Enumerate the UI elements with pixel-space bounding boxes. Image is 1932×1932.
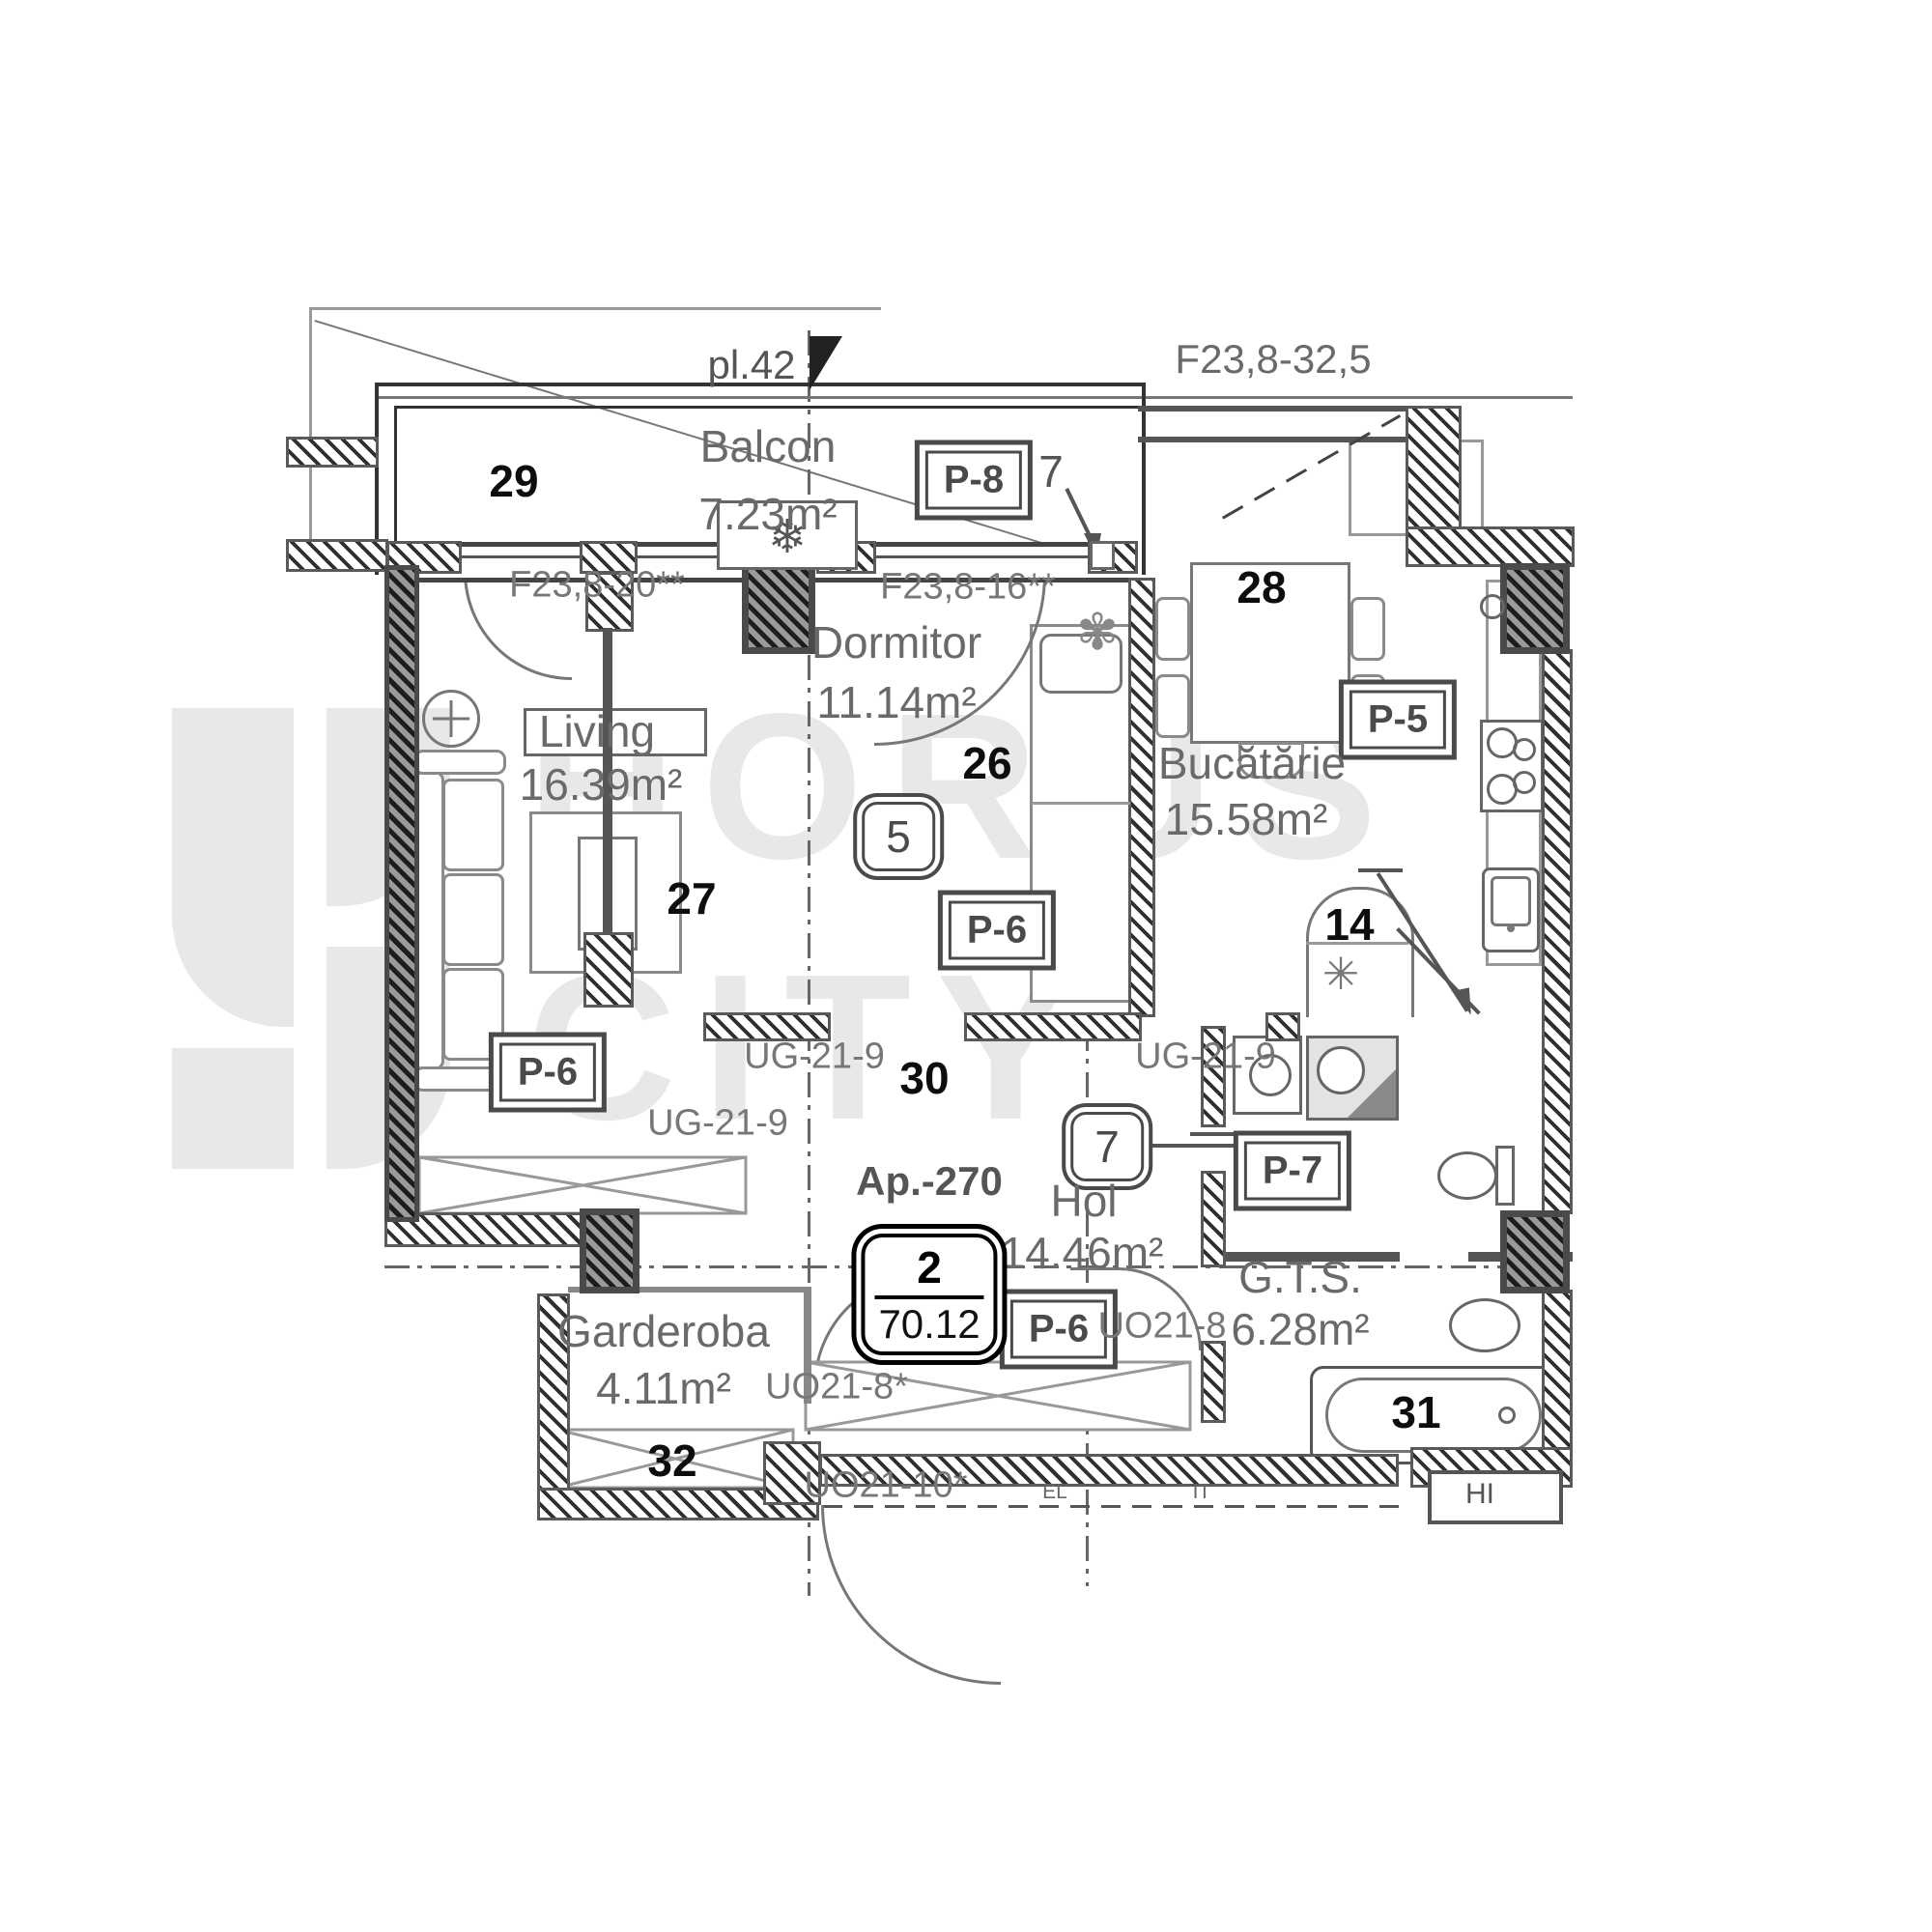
wall-stub-left xyxy=(286,437,379,468)
plan-ref-marker xyxy=(810,336,842,390)
panel-tag-p6-living: P-6 xyxy=(499,1043,596,1102)
boiler-arrowhead-1 xyxy=(1452,987,1474,1017)
room-number-living: 27 xyxy=(667,872,716,924)
apartment-number: 2 xyxy=(874,1241,983,1299)
boundary-line-top xyxy=(309,307,881,310)
toilet-tank xyxy=(1495,1146,1515,1206)
panel-label-hi: HI xyxy=(1465,1478,1494,1511)
room-area-dormitor: 11.14m² xyxy=(816,676,976,728)
opening-tag-uo-bottom: UO21-10* xyxy=(805,1465,968,1507)
cooktop xyxy=(1480,720,1544,812)
bathtub-drain xyxy=(1498,1406,1516,1424)
sofa-seat-3 xyxy=(442,968,504,1061)
hol-bottom-door-arc xyxy=(821,1505,1001,1685)
wall-bath-left-3 xyxy=(1201,1341,1226,1423)
bed-blanket-line xyxy=(1032,802,1130,805)
plan-ref-label: pl.42 xyxy=(707,342,795,388)
panel-tag-p5: P-5 xyxy=(1350,691,1446,750)
boiler-leader-tick xyxy=(1358,868,1403,872)
room-area-living: 16.39m² xyxy=(520,758,683,810)
column-living-garderoba xyxy=(580,1208,639,1293)
ceiling-symbol xyxy=(422,690,480,748)
opening-tag-ug-left: UG-21-9 xyxy=(744,1037,885,1078)
column-balcony xyxy=(742,561,815,654)
toilet-bowl xyxy=(1437,1151,1497,1200)
column-kitchen-right xyxy=(1500,563,1570,654)
apartment-ref-label: Ap.-270 xyxy=(856,1158,1003,1205)
chair-right-1 xyxy=(1350,597,1385,661)
window-tag-left: F23,8-20** xyxy=(509,565,685,607)
wall-dormitor-kitchen xyxy=(1128,578,1155,1017)
wall-exterior-right2 xyxy=(1542,1290,1573,1454)
room-name-dormitor: Dormitor xyxy=(811,616,981,668)
door7-leader-tick1 xyxy=(1190,1132,1252,1136)
panel-tag-p7: P-7 xyxy=(1244,1142,1341,1201)
door-tag-5: 5 xyxy=(862,802,935,871)
sofa-armrest-top xyxy=(413,750,506,775)
panel-label-it: IT xyxy=(1193,1481,1211,1504)
room-area-bucatarie: 15.58m² xyxy=(1165,793,1328,845)
boiler-bay-number: 14 xyxy=(1324,898,1374,951)
room-number-garderoba: 32 xyxy=(647,1435,696,1487)
door-tag-7: 7 xyxy=(1070,1112,1144,1181)
panel-tag-p6-dormitor: P-6 xyxy=(949,901,1045,960)
kitchen-sink xyxy=(1482,867,1540,952)
gts-sink xyxy=(1449,1298,1520,1352)
asterisk-icon: ✳ xyxy=(1322,948,1360,1000)
window-tag-mid: F23,8-16** xyxy=(880,567,1056,609)
room-name-balcon: Balcon xyxy=(700,420,837,472)
room-area-gts: 6.28m² xyxy=(1231,1303,1369,1355)
room-name-living: Living xyxy=(539,705,655,757)
chair-left-1 xyxy=(1155,597,1190,661)
opening-tag-ug-lower: UG-21-9 xyxy=(647,1103,788,1145)
balcony-lamp-box xyxy=(1090,541,1115,570)
room-name-garderoba: Garderoba xyxy=(557,1305,770,1357)
room-number-hol: 30 xyxy=(899,1052,949,1104)
opening-tag-ug-right: UG-21-9 xyxy=(1135,1037,1276,1078)
room-name-gts: G.T.S. xyxy=(1238,1251,1362,1303)
wall-hol-top-mid xyxy=(964,1012,1142,1041)
room-name-bucatarie: Bucătărie xyxy=(1158,737,1346,789)
boundary-line-left xyxy=(309,307,312,549)
window-dim-label: F23,8-32,5 xyxy=(1175,336,1371,383)
panel-box-hi xyxy=(1428,1470,1563,1524)
room-number-dormitor: 26 xyxy=(962,737,1011,789)
sofa-armrest-bottom xyxy=(413,1066,506,1092)
balcony-item-label: 7 xyxy=(1038,445,1064,497)
socket-icon xyxy=(1480,594,1505,619)
room-area-balcon: 7.23m² xyxy=(698,488,837,540)
living-wardrobe-xbox xyxy=(417,1155,748,1215)
panel-tag-p6-hol: P-6 xyxy=(1010,1300,1107,1359)
watermark-logo-bar3 xyxy=(172,1048,294,1169)
room-number-gts: 31 xyxy=(1391,1386,1440,1438)
chair-left-2 xyxy=(1155,674,1190,738)
room-area-hol: 14.46m² xyxy=(1001,1227,1164,1279)
opening-tag-uo-hol: UO21-8 xyxy=(1097,1306,1226,1348)
wall-entry-corner-h xyxy=(1406,526,1575,567)
sofa-seat-1 xyxy=(442,779,504,871)
column-right-mid xyxy=(1500,1210,1570,1293)
pier-central-bottom xyxy=(583,932,634,1008)
apartment-badge: 2 70.12 xyxy=(861,1234,997,1355)
room-number-bucatarie: 28 xyxy=(1236,561,1286,613)
panel-tag-p8: P-8 xyxy=(925,451,1022,510)
room-number-balcon: 29 xyxy=(489,455,538,507)
room-area-garderoba: 4.11m² xyxy=(596,1362,731,1414)
wall-bath-left-2 xyxy=(1201,1171,1226,1267)
shower-tray xyxy=(1306,1036,1399,1121)
panel-label-el: EL xyxy=(1042,1481,1067,1504)
opening-tag-uo-garderoba: UO21-8* xyxy=(765,1367,908,1408)
wall-stub-left2 xyxy=(286,539,388,572)
plant-icon: ✾ xyxy=(1076,604,1119,662)
floor-plan: HORUS CITY xyxy=(0,0,1932,1932)
watermark-logo-bar1 xyxy=(172,708,294,1027)
room-name-hol: Hol xyxy=(1050,1175,1117,1227)
wall-exterior-right xyxy=(1542,649,1573,1214)
wall-exterior-left xyxy=(384,565,419,1222)
sofa-seat-2 xyxy=(442,873,504,966)
apartment-total-area: 70.12 xyxy=(874,1299,983,1348)
